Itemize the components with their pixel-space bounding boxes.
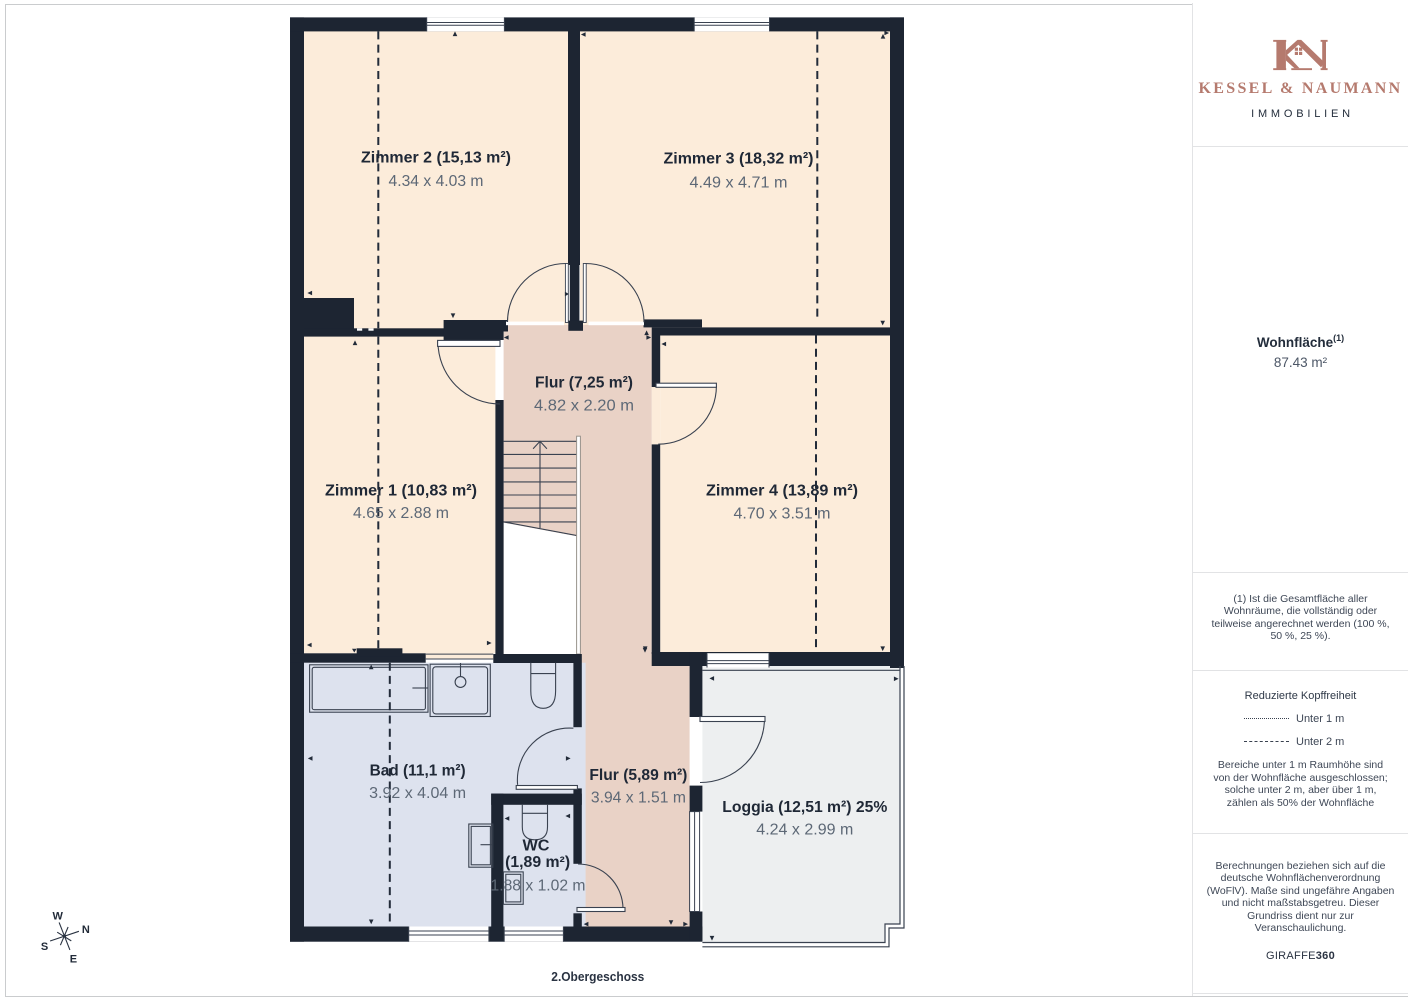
svg-text:Zimmer 4 (13,89 m²): Zimmer 4 (13,89 m²) <box>706 483 858 500</box>
svg-text:Bad (11,1 m²): Bad (11,1 m²) <box>370 763 466 780</box>
svg-text:1.88 x 1.02 m: 1.88 x 1.02 m <box>491 877 586 894</box>
svg-text:4.49 x 4.71 m: 4.49 x 4.71 m <box>690 175 788 192</box>
svg-text:3.92 x 4.04 m: 3.92 x 4.04 m <box>369 785 466 802</box>
svg-text:(1,89 m²): (1,89 m²) <box>505 854 570 871</box>
svg-text:Zimmer 2 (15,13 m²): Zimmer 2 (15,13 m²) <box>361 150 511 167</box>
svg-text:4.34 x 4.03 m: 4.34 x 4.03 m <box>389 173 484 190</box>
svg-text:S: S <box>41 941 48 953</box>
svg-text:E: E <box>70 954 77 966</box>
svg-text:3.94 x 1.51 m: 3.94 x 1.51 m <box>591 789 686 806</box>
svg-text:WC: WC <box>523 838 550 855</box>
svg-text:Zimmer 1 (10,83 m²): Zimmer 1 (10,83 m²) <box>325 483 477 500</box>
svg-text:4.65 x 2.88 m: 4.65 x 2.88 m <box>353 505 449 522</box>
svg-text:4.24 x 2.99 m: 4.24 x 2.99 m <box>756 821 853 838</box>
svg-text:Flur (5,89 m²): Flur (5,89 m²) <box>589 767 687 784</box>
svg-text:W: W <box>53 911 64 923</box>
svg-text:Flur (7,25 m²): Flur (7,25 m²) <box>535 375 633 392</box>
svg-text:N: N <box>82 924 90 936</box>
svg-text:4.82 x 2.20 m: 4.82 x 2.20 m <box>534 398 634 415</box>
svg-text:Zimmer 3 (18,32 m²): Zimmer 3 (18,32 m²) <box>664 151 814 168</box>
svg-text:2.Obergeschoss: 2.Obergeschoss <box>551 970 644 984</box>
svg-text:Loggia (12,51 m²) 25%: Loggia (12,51 m²) 25% <box>722 799 887 816</box>
svg-text:4.70 x 3.51 m: 4.70 x 3.51 m <box>734 506 831 523</box>
